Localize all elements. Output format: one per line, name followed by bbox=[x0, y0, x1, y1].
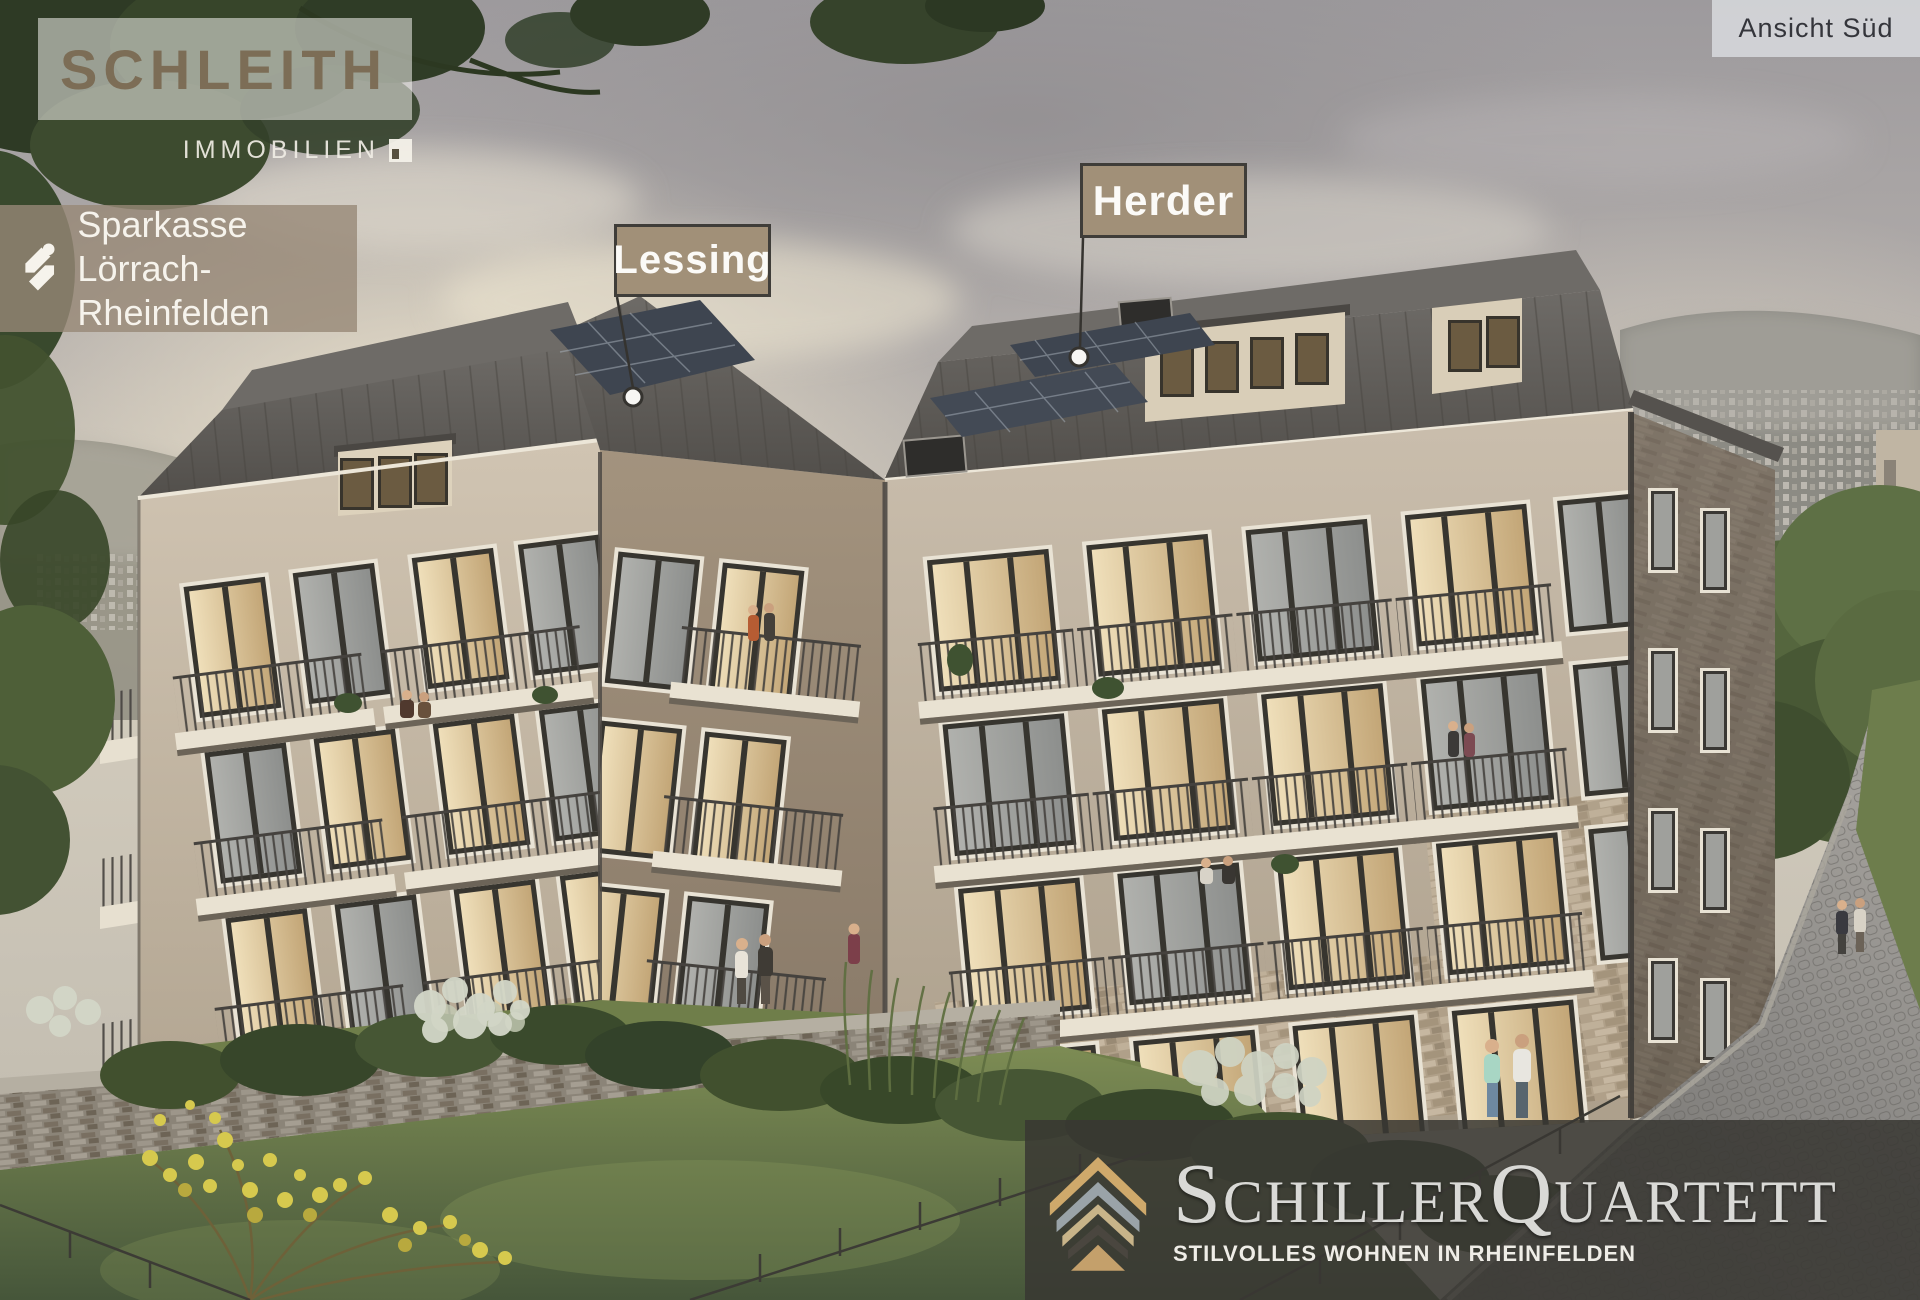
person bbox=[400, 690, 414, 718]
view-label: Ansicht Süd bbox=[1712, 0, 1920, 57]
project-banner: SchillerQuartett STILVOLLES WOHNEN IN RH… bbox=[1025, 1120, 1920, 1300]
person bbox=[764, 603, 775, 641]
person bbox=[748, 605, 759, 641]
scene-rendering bbox=[0, 0, 1920, 1300]
project-title: SchillerQuartett bbox=[1173, 1153, 1838, 1235]
person bbox=[1448, 721, 1459, 757]
building-label-herder: Herder bbox=[1080, 163, 1247, 238]
sparkasse-s-icon bbox=[20, 238, 59, 300]
skylight bbox=[904, 435, 967, 476]
project-subtitle: STILVOLLES WOHNEN IN RHEINFELDEN bbox=[1173, 1241, 1838, 1267]
sparkasse-logo: Sparkasse Lörrach-Rheinfelden bbox=[0, 205, 357, 332]
roof-layers-icon bbox=[1045, 1149, 1151, 1271]
person bbox=[848, 924, 860, 965]
person bbox=[1464, 723, 1475, 757]
schleith-logo: SCHLEITH IMMOBILIEN bbox=[38, 18, 412, 165]
rendering-canvas: SCHLEITH IMMOBILIEN Sparkasse Lörrach-Rh… bbox=[0, 0, 1920, 1300]
schleith-subtitle: IMMOBILIEN bbox=[183, 136, 380, 165]
schleith-cube-icon bbox=[389, 139, 412, 162]
sparkasse-line2: Lörrach-Rheinfelden bbox=[77, 247, 357, 335]
building-label-lessing: Lessing bbox=[614, 224, 771, 297]
schleith-name: SCHLEITH bbox=[60, 37, 388, 102]
sparkasse-line1: Sparkasse bbox=[77, 203, 357, 247]
schleith-logo-box: SCHLEITH bbox=[38, 18, 412, 120]
